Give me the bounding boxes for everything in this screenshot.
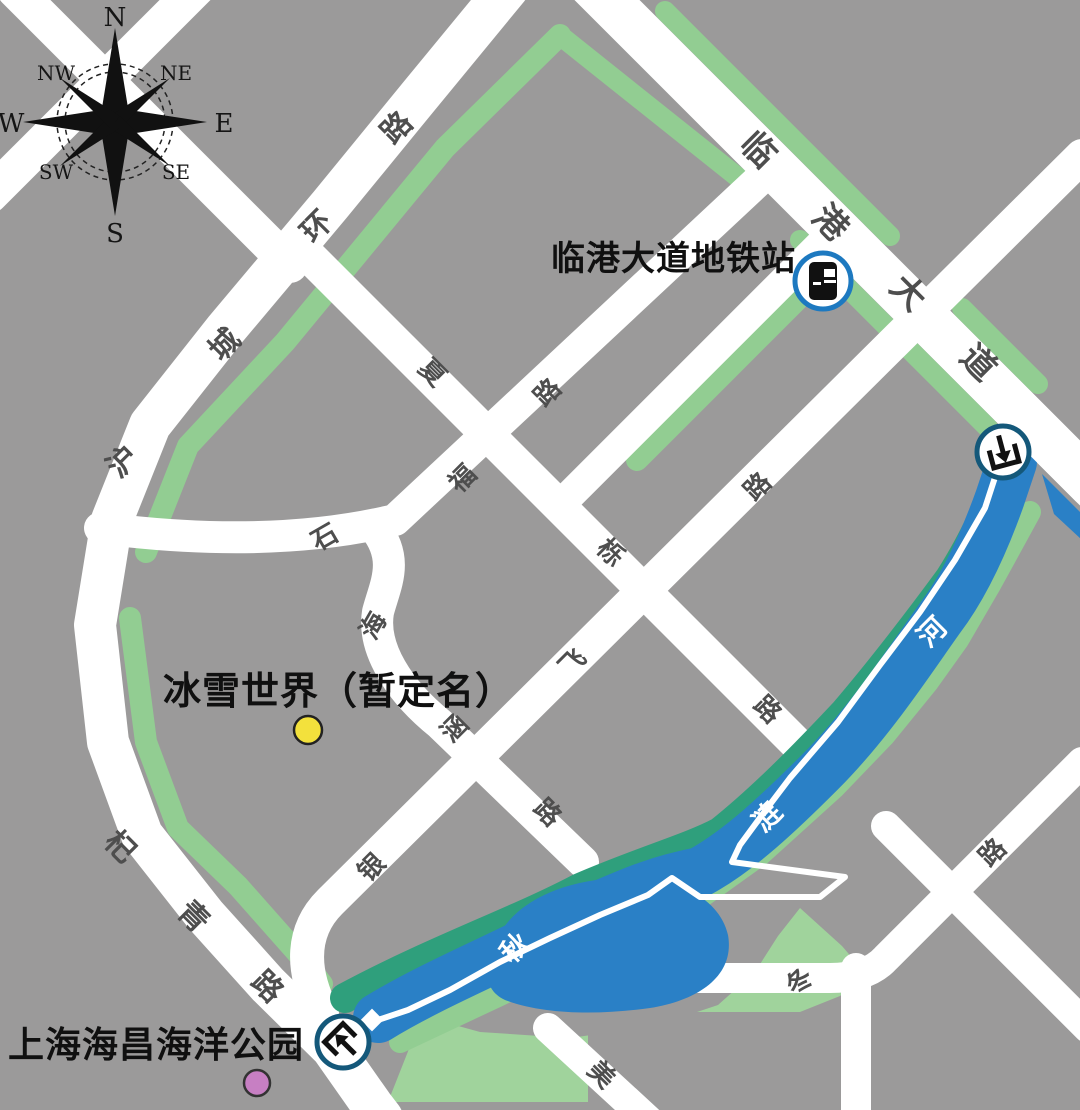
ocean-park-label: 上海海昌海洋公园 [8,1025,304,1066]
compass-direction-label: SE [162,160,190,184]
compass-direction-label: S [106,219,124,249]
ocean-park-marker-dot [244,1070,270,1096]
compass-direction-label: NW [37,61,76,85]
ice-world-marker-dot [294,716,322,744]
compass-direction-label: NE [160,61,192,85]
compass-direction-label: N [104,3,127,33]
riverwalk-entrance-badge [977,426,1029,478]
metro-station-icon [795,253,851,309]
compass-direction-label: E [215,109,234,139]
compass-direction-label: SW [39,160,74,184]
ice-world-label: 冰雪世界（暂定名） [163,669,514,713]
schematic-map: NNEESESSWWNW 沪城环路临港大道石海涵路夏栎路福路银飞路杞青路冬路美 … [0,0,1080,1110]
metro-station-label: 临港大道地铁站 [551,239,796,279]
map-canvas: NNEESESSWWNW 沪城环路临港大道石海涵路夏栎路福路银飞路杞青路冬路美 … [0,0,1080,1110]
compass-direction-label: W [0,109,25,139]
riverwalk-entrance-badge [317,1016,369,1068]
